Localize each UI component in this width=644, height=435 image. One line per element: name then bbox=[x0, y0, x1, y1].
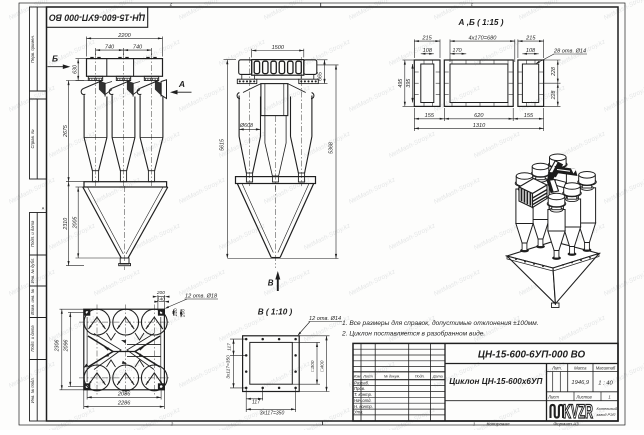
svg-text:□300: □300 bbox=[310, 360, 316, 371]
svg-text:Нач.отд.: Нач.отд. bbox=[354, 398, 372, 403]
svg-text:2096: 2096 bbox=[63, 340, 69, 353]
svg-text:Взам. инв. №: Взам. инв. № bbox=[30, 288, 35, 314]
svg-text:2. Циклон поставляется в разоб: 2. Циклон поставляется в разобранном вид… bbox=[341, 330, 485, 338]
svg-text:Подп.: Подп. bbox=[415, 375, 425, 379]
svg-text:228: 228 bbox=[551, 91, 557, 101]
svg-text:740: 740 bbox=[133, 45, 143, 51]
svg-text:2086: 2086 bbox=[117, 391, 131, 397]
svg-text:2286: 2286 bbox=[117, 401, 131, 407]
svg-text:□400: □400 bbox=[320, 360, 326, 371]
svg-text:12 отв. Ø14: 12 отв. Ø14 bbox=[309, 316, 341, 322]
svg-text:А: А bbox=[42, 207, 45, 211]
svg-text:Ø608: Ø608 bbox=[239, 123, 253, 129]
svg-text:495: 495 bbox=[398, 79, 404, 88]
svg-text:117: 117 bbox=[252, 400, 260, 406]
svg-text:Справ. №: Справ. № bbox=[30, 129, 35, 148]
svg-text:Перв. примен.: Перв. примен. bbox=[30, 35, 35, 63]
svg-text:Б: Б bbox=[52, 54, 58, 64]
svg-text:2005: 2005 bbox=[73, 217, 79, 230]
svg-text:А: А bbox=[178, 79, 185, 89]
svg-text:2306: 2306 bbox=[55, 340, 61, 353]
svg-text:108: 108 bbox=[423, 48, 433, 54]
svg-text:Инв. № дубл.: Инв. № дубл. bbox=[30, 258, 35, 284]
svg-text:2: 2 bbox=[170, 422, 174, 427]
svg-text:108: 108 bbox=[526, 48, 536, 54]
svg-text:2200: 2200 bbox=[117, 33, 131, 39]
svg-text:200: 200 bbox=[156, 290, 165, 296]
svg-text:Копировал: Копировал bbox=[487, 422, 510, 427]
svg-text:Подп. и дата: Подп. и дата bbox=[30, 325, 35, 352]
svg-text:1: 1 bbox=[473, 422, 476, 427]
svg-text:№ докум.: № докум. bbox=[384, 375, 400, 379]
svg-text:1310: 1310 bbox=[473, 123, 486, 129]
svg-text:5615: 5615 bbox=[219, 139, 225, 151]
svg-text:Разраб.: Разраб. bbox=[354, 380, 369, 385]
svg-text:Изм: Изм bbox=[354, 375, 361, 379]
svg-text:Пров.: Пров. bbox=[354, 386, 365, 391]
svg-text:665: 665 bbox=[318, 72, 324, 81]
svg-text:Лист: Лист bbox=[362, 375, 373, 379]
svg-text:Лист: Лист bbox=[547, 395, 559, 400]
svg-text:215: 215 bbox=[525, 36, 536, 42]
svg-text:Формат А3: Формат А3 bbox=[553, 422, 579, 427]
svg-text:1. Все размеры для справок, до: 1. Все размеры для справок, допустимые о… bbox=[342, 319, 539, 327]
svg-text:155: 155 bbox=[425, 113, 435, 119]
svg-text:2: 2 bbox=[169, 2, 173, 7]
svg-text:1946,9: 1946,9 bbox=[571, 380, 590, 386]
svg-text:3x117=350: 3x117=350 bbox=[260, 411, 285, 417]
svg-text:630: 630 bbox=[73, 65, 79, 74]
svg-text:KVZR: KVZR bbox=[563, 402, 593, 423]
svg-text:228: 228 bbox=[551, 67, 557, 77]
svg-text:Масштаб: Масштаб bbox=[596, 366, 616, 371]
svg-text:155: 155 bbox=[524, 113, 534, 119]
svg-text:Н. контр.: Н. контр. bbox=[354, 404, 373, 409]
svg-text:Масса: Масса bbox=[574, 366, 587, 371]
svg-text:Лит.: Лит. bbox=[551, 366, 562, 371]
svg-text:5368: 5368 bbox=[329, 142, 335, 154]
svg-text:170: 170 bbox=[452, 48, 462, 54]
svg-text:В: В bbox=[268, 279, 274, 288]
svg-text:ЦН-15-600-6УП-000 ВО: ЦН-15-600-6УП-000 ВО bbox=[478, 349, 586, 360]
svg-text:Утв.: Утв. bbox=[354, 410, 364, 415]
svg-text:4x170=680: 4x170=680 bbox=[468, 36, 497, 42]
svg-text:Дата: Дата bbox=[432, 375, 443, 379]
svg-text:1500: 1500 bbox=[272, 45, 285, 51]
svg-text:140: 140 bbox=[157, 296, 165, 302]
svg-text:В ( 1:10 ): В ( 1:10 ) bbox=[258, 308, 293, 317]
svg-text:740: 740 bbox=[105, 45, 115, 51]
svg-text:1: 1 bbox=[608, 395, 610, 400]
svg-text:завод РЭП: завод РЭП bbox=[596, 413, 616, 417]
svg-text:Инв. № подл.: Инв. № подл. bbox=[30, 377, 35, 403]
svg-text:Циклон ЦН-15-600х6УП: Циклон ЦН-15-600х6УП bbox=[449, 377, 543, 386]
svg-text:117: 117 bbox=[227, 343, 233, 351]
svg-text:200: 200 bbox=[180, 309, 186, 318]
svg-text:12 отв. Ø18: 12 отв. Ø18 bbox=[185, 294, 218, 300]
svg-text:140: 140 bbox=[173, 308, 179, 316]
svg-text:ЦН-15-600-6УП-000 ВО: ЦН-15-600-6УП-000 ВО bbox=[49, 12, 145, 22]
svg-text:620: 620 bbox=[474, 113, 484, 119]
svg-text:395: 395 bbox=[406, 79, 412, 88]
svg-text:Листов: Листов bbox=[575, 395, 592, 400]
svg-text:28 отв. Ø14: 28 отв. Ø14 bbox=[553, 49, 586, 55]
svg-text:Подп. и дата: Подп. и дата bbox=[30, 220, 35, 247]
svg-text:2310: 2310 bbox=[63, 218, 69, 231]
svg-text:2675: 2675 bbox=[63, 125, 69, 138]
svg-text:Котельный: Котельный bbox=[597, 407, 619, 411]
svg-text:А ,Б ( 1:15 ): А ,Б ( 1:15 ) bbox=[458, 18, 504, 27]
svg-text:1 : 40: 1 : 40 bbox=[598, 381, 613, 387]
svg-text:215: 215 bbox=[421, 36, 432, 42]
svg-text:3x117=350: 3x117=350 bbox=[225, 355, 231, 379]
svg-text:Т. контр.: Т. контр. bbox=[354, 392, 372, 397]
